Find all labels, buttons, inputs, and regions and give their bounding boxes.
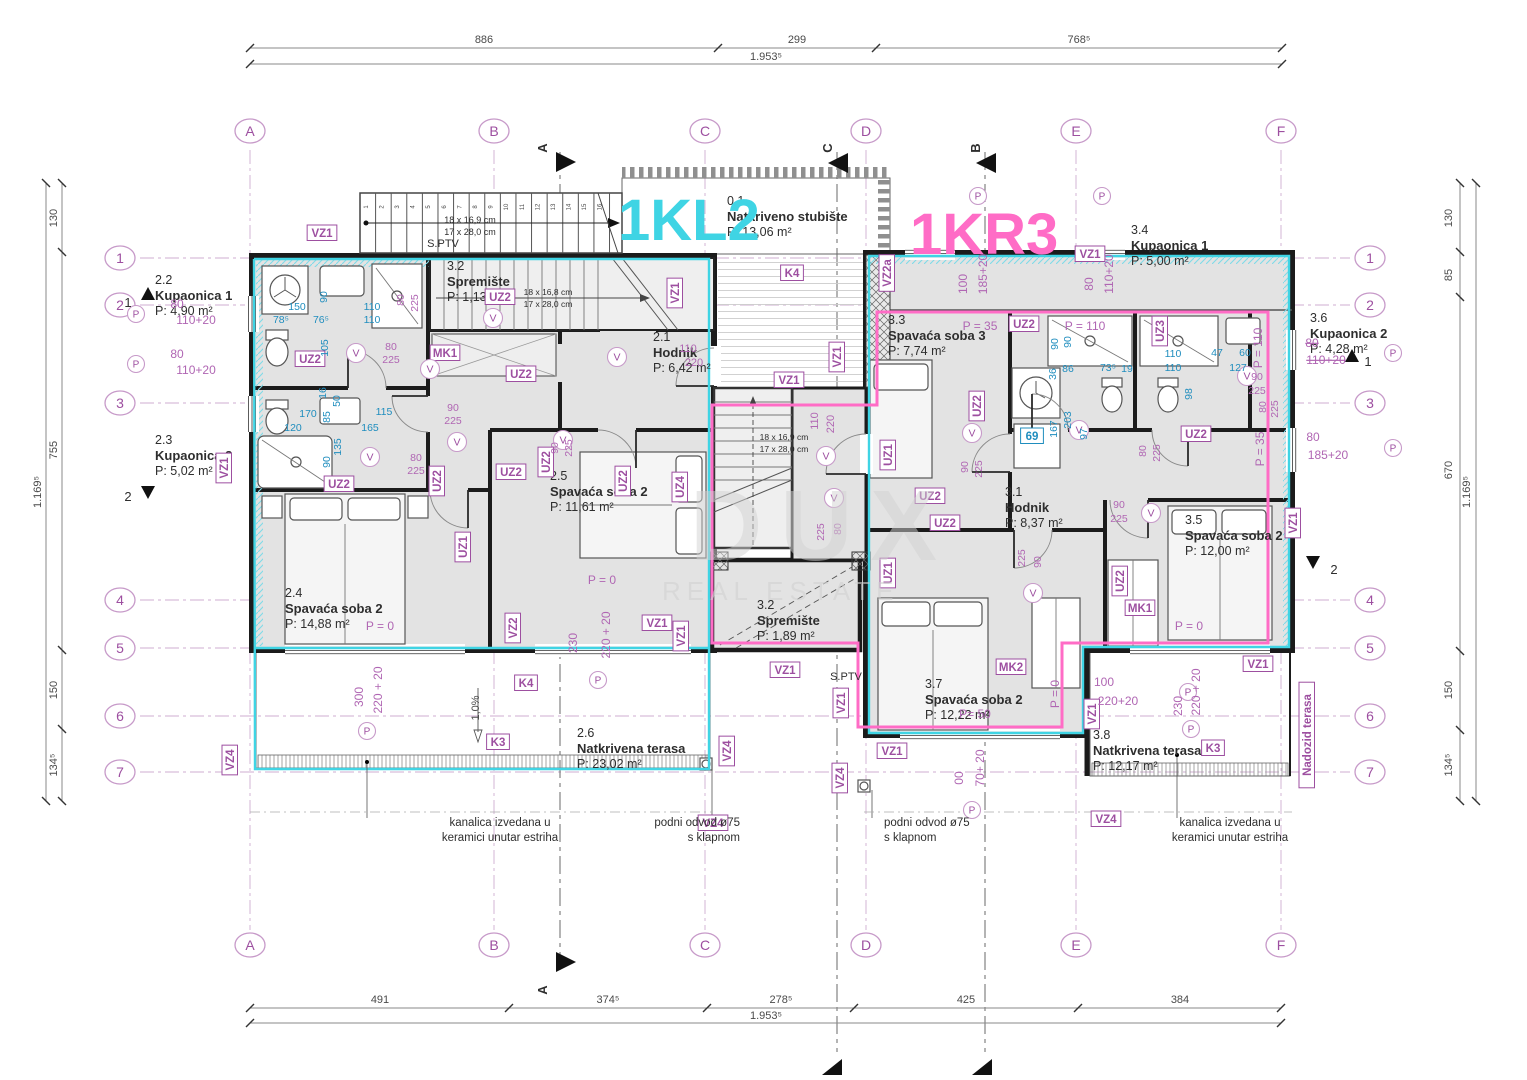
- tag-label: K3: [1206, 743, 1221, 755]
- annotation-text: C: [820, 143, 835, 153]
- room-area: P: 12,00 m²: [1185, 544, 1250, 558]
- annotation-text: 2: [124, 489, 131, 504]
- room-number: 3.1: [1005, 485, 1022, 499]
- grid-bubble-label: F: [1277, 123, 1286, 139]
- tag-uz4: UZ4: [672, 472, 688, 502]
- annotation-text: 2: [1330, 562, 1337, 577]
- annotation-text: podni odvod ø75: [884, 817, 970, 829]
- room-name: Kupaonica 1: [155, 288, 232, 303]
- tag-uz1: UZ1: [455, 532, 471, 562]
- section-marker-triangle: [1306, 556, 1320, 569]
- tag-uz1: UZ1: [880, 440, 896, 470]
- tag-label: UZ2: [500, 467, 522, 479]
- stair-tread-number: 12: [535, 203, 541, 210]
- tag-vz2a: VZ2a: [879, 255, 895, 292]
- grid-bubble-label: 4: [1366, 592, 1374, 608]
- annotation-text: 225: [1248, 385, 1266, 397]
- annotation-text: 19: [1121, 363, 1133, 375]
- grid-bubble-label: 7: [1366, 764, 1374, 780]
- annotation-text: P = 0: [1175, 619, 1203, 633]
- annotation-text: kanalica izvedana u: [1179, 817, 1280, 829]
- room-name: Spremište: [447, 274, 510, 289]
- crenellated-wall-right: [878, 178, 890, 255]
- annotation-text: kanalica izvedana u: [449, 817, 550, 829]
- annotation-text: 185+20: [976, 253, 990, 294]
- grid-bubble-label: 1: [116, 250, 124, 266]
- annotation-text: 150: [48, 681, 60, 699]
- annotation-text: 90: [321, 456, 333, 468]
- floor-plan-page: 12345678910111213141516: [0, 0, 1527, 1080]
- annotation-text: 670: [1443, 461, 1455, 479]
- p-circle-label: P: [133, 310, 140, 321]
- grid-bubble-label: B: [489, 123, 498, 139]
- annotation-text: 80: [1137, 445, 1149, 457]
- annotation-text: 165: [361, 422, 379, 434]
- annotation-text: 225: [444, 415, 462, 427]
- tag-uz2: UZ2: [506, 366, 536, 382]
- tag-label: VZ1: [836, 692, 848, 714]
- tag-label: VZ2: [508, 617, 520, 638]
- annotation-text: 300: [352, 687, 366, 707]
- room-number: 2.1: [653, 330, 670, 344]
- tag-label: UZ2: [510, 369, 532, 381]
- nightstand: [408, 496, 428, 518]
- annotation-text: P = 110: [1065, 319, 1106, 333]
- tag-label: UZ4: [675, 476, 687, 498]
- room-number: 2.6: [577, 726, 594, 740]
- room-name: Kupaonica 1: [1131, 238, 1208, 253]
- room-name: Natkrivena terasa: [1093, 743, 1202, 758]
- tag-uz2: UZ2: [969, 391, 985, 421]
- annotation-text: 230: [1171, 696, 1185, 716]
- annotation-text: 299: [788, 34, 806, 46]
- tag-vz4: VZ4: [719, 736, 735, 766]
- room-name: Hodnik: [1005, 500, 1050, 515]
- tag-label: 69: [1026, 431, 1039, 443]
- shower-drain-icon: [1173, 336, 1183, 346]
- grid-bubble-label: F: [1277, 937, 1286, 953]
- annotation-text: 90: [1032, 556, 1044, 568]
- annotation-text: podni odvod ø75: [654, 817, 740, 829]
- room-number: 2.3: [155, 433, 172, 447]
- annotation-text: P= 50: [959, 707, 991, 721]
- annotation-text: 73⁵: [1100, 362, 1116, 374]
- tag-vz4: VZ4: [222, 745, 238, 775]
- room-area: P: 1,89 m²: [757, 629, 815, 643]
- tag-label: UZ2: [432, 470, 444, 492]
- grid-bubble-label: E: [1071, 123, 1080, 139]
- annotation-text: 225: [1151, 444, 1163, 462]
- floor-plan-drawing: 12345678910111213141516: [0, 0, 1527, 1080]
- tag-k3: K3: [1202, 740, 1225, 756]
- annotation-text: 374⁵: [597, 994, 620, 1006]
- grid-bubble-label: 6: [116, 708, 124, 724]
- annotation-text: DUX: [690, 470, 955, 582]
- tag-uz2: UZ2: [615, 466, 631, 496]
- grid-bubble-label: 2: [116, 297, 124, 313]
- tag-vz1: VZ1: [1243, 656, 1273, 672]
- annotation-text: keramici unutar estriha: [1172, 832, 1289, 844]
- tag-label: VZ4: [225, 749, 237, 771]
- annotation-text: S.PTV: [830, 671, 862, 683]
- tag-uz3: UZ3: [1152, 316, 1168, 346]
- pillow: [348, 498, 400, 520]
- annotation-text: 130: [48, 209, 60, 227]
- tag-vz1: VZ1: [667, 278, 683, 308]
- tag-vz1: VZ1: [216, 453, 232, 483]
- tag-label: VZ1: [670, 282, 682, 304]
- annotation-text: 97: [1078, 428, 1090, 440]
- tag-mk1: MK1: [430, 345, 460, 361]
- tag-label: VZ1: [646, 618, 668, 630]
- grid-bubble-label: D: [861, 123, 871, 139]
- annotation-text: 90: [1062, 336, 1074, 348]
- annotation-text: 220 + 20: [371, 666, 385, 713]
- annotation-text: 886: [475, 34, 493, 46]
- section-marker-triangle: [141, 287, 155, 300]
- vent-circle-label: V: [613, 352, 620, 364]
- stair-tread-number: 11: [520, 203, 526, 210]
- p-circle-label: P: [1099, 192, 1106, 203]
- annotation-text: 98: [1183, 388, 1195, 400]
- annotation-text: 110: [1165, 362, 1182, 374]
- tag-label: UZ2: [1115, 570, 1127, 592]
- annotation-text: 80: [170, 347, 184, 361]
- annotation-text: P = 110: [1251, 327, 1265, 368]
- room-name: Natkrivena terasa: [577, 741, 686, 756]
- floor-drain-icon: [860, 782, 868, 790]
- annotation-text: 1.953⁵: [750, 1010, 782, 1022]
- tag-label: K3: [491, 737, 506, 749]
- section-marker-triangle: [556, 152, 576, 172]
- vent-circle-label: V: [366, 452, 373, 464]
- tag-mk1: MK1: [1125, 600, 1155, 616]
- tag-vz1: VZ1: [307, 225, 337, 241]
- toilet: [1158, 386, 1178, 412]
- annotation-text: 225: [382, 354, 400, 366]
- room-area: P: 11,61 m²: [550, 500, 614, 514]
- vent-circle-label: V: [352, 348, 359, 360]
- grid-bubble-label: E: [1071, 937, 1080, 953]
- tag-nadozid-terasa: Nadozid terasa: [1299, 682, 1315, 788]
- room-name: Spavaća soba 2: [1185, 528, 1283, 543]
- annotation-text: 225: [1110, 513, 1128, 525]
- annotation-text: 86: [1062, 363, 1074, 375]
- leader-dot: [365, 760, 369, 764]
- tag-label: VZ1: [832, 346, 844, 368]
- stair-tread-number: 13: [551, 203, 557, 210]
- annotation-text: 1: [1364, 354, 1371, 369]
- tag-label: UZ1: [883, 444, 895, 466]
- tag-label: UZ2: [972, 395, 984, 417]
- annotation-text: 80: [1306, 430, 1320, 444]
- grid-bubble-label: 2: [1366, 297, 1374, 313]
- section-marker-triangle: [972, 1059, 992, 1075]
- vent-circle-label: V: [426, 364, 433, 376]
- room-number: 3.4: [1131, 223, 1148, 237]
- annotation-text: 90: [1049, 338, 1061, 350]
- room-number: 3.8: [1093, 728, 1110, 742]
- annotation-text: 47: [1211, 347, 1223, 359]
- annotation-text: 80: [1082, 277, 1096, 291]
- tag-label: UZ2: [328, 479, 350, 491]
- tag-uz2: UZ2: [1112, 566, 1128, 596]
- tag-uz2: UZ2: [1009, 316, 1039, 332]
- tag-vz4: VZ4: [1091, 811, 1121, 827]
- p-circle-label: P: [133, 360, 140, 371]
- tag-label: UZ1: [458, 536, 470, 558]
- annotation-text: 18 x 16,9 cm: [444, 215, 496, 225]
- annotation-text: 110+20: [1306, 353, 1346, 367]
- tag-label: VZ1: [881, 746, 903, 758]
- tag-label: K4: [519, 678, 534, 690]
- grid-bubble-label: 7: [116, 764, 124, 780]
- annotation-text: 85: [1443, 269, 1455, 281]
- tag-label: VZ4: [1095, 814, 1117, 826]
- grid-bubble-label: C: [700, 123, 710, 139]
- annotation-text: 76⁵: [313, 314, 329, 326]
- annotation-text: 425: [957, 994, 975, 1006]
- room-area: P: 23,02 m²: [577, 757, 642, 771]
- section-marker-triangle: [141, 486, 155, 499]
- annotation-text: 225: [1016, 549, 1028, 567]
- tag-label: VZ2a: [882, 259, 894, 287]
- section-marker-triangle: [822, 1059, 842, 1075]
- room-area: P: 14,88 m²: [285, 617, 350, 631]
- annotation-text: 185+20: [1308, 448, 1349, 462]
- grid-bubble-label: 4: [116, 592, 124, 608]
- tag-vz1: VZ1: [877, 743, 907, 759]
- tag-label: MK1: [1128, 603, 1153, 615]
- tag-vz1: VZ1: [1075, 246, 1105, 262]
- annotation-text: 220+20: [1098, 694, 1139, 708]
- annotation-text: 110: [679, 343, 697, 355]
- tag-vz4: VZ4: [832, 763, 848, 793]
- annotation-text: 50: [331, 395, 343, 407]
- grid-bubble-label: 3: [116, 395, 124, 411]
- tag-k3: K3: [487, 734, 510, 750]
- tag-uz2: UZ2: [485, 289, 515, 305]
- tag-uz2: UZ2: [324, 476, 354, 492]
- annotation-text: 115: [376, 406, 393, 418]
- tag-label: VZ1: [1247, 659, 1269, 671]
- room-name: Spavaća soba 2: [550, 484, 648, 499]
- tag-vz1: VZ1: [1285, 508, 1301, 538]
- annotation-text: 225: [973, 460, 985, 478]
- room-number: 3.5: [1185, 513, 1202, 527]
- annotation-text: 170: [299, 408, 317, 420]
- annotation-text: 80: [170, 297, 184, 311]
- grid-bubble-label: C: [700, 937, 710, 953]
- annotation-text: 18 x 16,8 cm: [524, 287, 573, 297]
- annotation-text: 105: [319, 339, 331, 357]
- annotation-text: s klapnom: [688, 832, 740, 844]
- annotation-text: 18 x 16,9 cm: [760, 432, 809, 442]
- annotation-text: 70+ 20: [973, 749, 987, 786]
- annotation-text: 110+20: [1102, 254, 1116, 294]
- room-number: 3.2: [447, 259, 464, 273]
- tag-uz2: UZ2: [429, 466, 445, 496]
- vent-circle-label: V: [453, 437, 460, 449]
- annotation-text: 90: [318, 291, 330, 303]
- tag-label: VZ1: [676, 625, 688, 647]
- tag-label: MK1: [433, 348, 458, 360]
- annotation-text: 17 x 28,0 cm: [760, 444, 809, 454]
- vent-circle-label: V: [489, 313, 496, 325]
- tag-label: VZ1: [219, 457, 231, 479]
- annotation-text: P = 35: [963, 319, 998, 333]
- p-circle-label: P: [1390, 444, 1397, 455]
- annotation-text: 90: [1113, 499, 1125, 511]
- tag-label: K4: [785, 268, 800, 280]
- annotation-text: 225: [407, 465, 425, 477]
- section-marker-triangle: [556, 952, 576, 972]
- door-opening: [860, 434, 873, 474]
- annotation-text: 80: [1305, 336, 1319, 350]
- annotation-text: keramici unutar estriha: [442, 832, 559, 844]
- room-name: Spavaća soba 2: [925, 692, 1023, 707]
- annotation-text: 100: [956, 274, 970, 294]
- tag-label: VZ1: [774, 665, 796, 677]
- room-number: 3.7: [925, 677, 942, 691]
- room-area: P: 12,17 m²: [1093, 759, 1158, 773]
- annotation-text: 203: [1062, 411, 1074, 429]
- p-circle-label: P: [975, 192, 982, 203]
- annotation-text: 90: [1251, 371, 1263, 383]
- annotation-text: P = 0: [588, 573, 616, 587]
- nightstand: [262, 496, 282, 518]
- annotation-text: P = 0: [366, 619, 394, 633]
- room-name: Kupaonica 2: [1310, 326, 1387, 341]
- annotation-text: 220 + 20: [1189, 668, 1203, 715]
- tag-label: Nadozid terasa: [1302, 693, 1314, 775]
- room-area: P: 5,02 m²: [155, 464, 213, 478]
- tag-label: UZ2: [618, 470, 630, 492]
- room-name: Spavaća soba 2: [285, 601, 383, 616]
- pillow: [934, 602, 982, 626]
- annotation-text: 127: [1229, 362, 1247, 374]
- annotation-text: 135: [332, 438, 344, 456]
- annotation-text: 134⁵: [1443, 754, 1455, 777]
- pillow: [290, 498, 342, 520]
- annotation-text: 134⁵: [48, 754, 60, 777]
- annotation-text: 110: [364, 314, 381, 326]
- annotation-text: 36: [1047, 368, 1059, 380]
- grid-bubble-label: 3: [1366, 395, 1374, 411]
- tag-vz1: VZ1: [770, 662, 800, 678]
- tag-label: UZ3: [1155, 320, 1167, 342]
- annotation-text: 80: [395, 294, 407, 306]
- annotation-text: A: [535, 985, 550, 995]
- annotation-text: B: [968, 143, 983, 152]
- vent-circle-label: V: [1029, 588, 1036, 600]
- tag-label: UZ2: [1185, 429, 1207, 441]
- pillow: [874, 364, 928, 390]
- tag-vz1: VZ1: [642, 615, 672, 631]
- grid-bubble-label: A: [245, 937, 255, 953]
- vent-circle-label: V: [968, 428, 975, 440]
- tag-label: VZ1: [1079, 249, 1101, 261]
- tag-label: MK2: [999, 662, 1023, 674]
- room-number: 3.3: [888, 313, 905, 327]
- annotation-text: REAL ESTATE: [662, 576, 899, 606]
- room-number: 2.2: [155, 273, 172, 287]
- annotation-text: 225: [409, 294, 421, 312]
- annotation-text: 150: [288, 301, 306, 313]
- annotation-text: 120: [284, 422, 302, 434]
- tag-label: VZ4: [835, 767, 847, 789]
- annotation-text: 85: [321, 411, 333, 423]
- annotation-text: 17 x 28,0 cm: [444, 227, 496, 237]
- annotation-text: 60: [1239, 347, 1251, 359]
- tag-vz2: VZ2: [505, 613, 521, 643]
- tag-vz1: VZ1: [833, 688, 849, 718]
- room-area: P: 5,00 m²: [1131, 254, 1189, 268]
- annotation-text: 90: [549, 442, 561, 454]
- annotation-text: 78⁵: [273, 314, 289, 326]
- annotation-text: 220: [825, 415, 837, 433]
- vent-circle-label: V: [1147, 508, 1154, 520]
- room-area: P: 8,37 m²: [1005, 516, 1063, 530]
- tag-k4: K4: [515, 675, 538, 691]
- annotation-text: 384: [1171, 994, 1189, 1006]
- grid-bubble-label: D: [861, 937, 871, 953]
- annotation-text: 220: [685, 357, 703, 369]
- annotation-text: 225: [563, 439, 575, 457]
- annotation-text: S.PTV: [427, 238, 459, 250]
- annotation-text: 110: [364, 301, 381, 313]
- p-circle-label: P: [969, 806, 976, 817]
- tag-label: VZ1: [311, 228, 333, 240]
- annotation-text: 491: [371, 994, 389, 1006]
- annotation-text: 110: [809, 412, 821, 430]
- annotation-text: 90: [959, 461, 971, 473]
- annotation-text: 110+20: [176, 313, 216, 327]
- stair-tread-number: 14: [567, 203, 573, 210]
- annotation-text: 130: [1443, 209, 1455, 227]
- crenellated-wall-top: [622, 167, 890, 178]
- annotation-text: 167: [1048, 420, 1060, 438]
- toilet: [266, 338, 288, 366]
- annotation-text: 150: [1443, 681, 1455, 699]
- annotation-text: 110: [1165, 348, 1182, 360]
- walkline-start-dot: [364, 221, 369, 226]
- annotation-text: 278⁵: [770, 994, 793, 1006]
- annotation-text: P = 35: [1253, 431, 1267, 466]
- annotation-text: 755: [48, 441, 60, 459]
- vent-circle-label: V: [822, 451, 829, 463]
- annotation-text: 230: [566, 633, 580, 653]
- annotation-text: A: [535, 143, 550, 153]
- grid-bubble-label: 1: [1366, 250, 1374, 266]
- annotation-text: s klapnom: [884, 832, 936, 844]
- grid-bubble-label: B: [489, 937, 498, 953]
- tag-label: VZ4: [722, 740, 734, 762]
- annotation-text: 90: [447, 402, 459, 414]
- tag-label: VZ1: [778, 375, 800, 387]
- room-number: 2.4: [285, 586, 302, 600]
- stair-tread-number: 15: [582, 203, 588, 210]
- annotation-text: 220 + 20: [599, 611, 613, 658]
- annotation-text: 225: [1269, 400, 1281, 418]
- grid-bubble-label: 5: [116, 640, 124, 656]
- annotation-text: 80: [385, 341, 397, 353]
- room-name: Spremište: [757, 613, 820, 628]
- grid-bubble-label: A: [245, 123, 255, 139]
- annotation-text: 1.169⁵: [32, 476, 44, 508]
- annotation-text: 17 x 28,0 cm: [524, 299, 573, 309]
- tag-uz2: UZ2: [496, 464, 526, 480]
